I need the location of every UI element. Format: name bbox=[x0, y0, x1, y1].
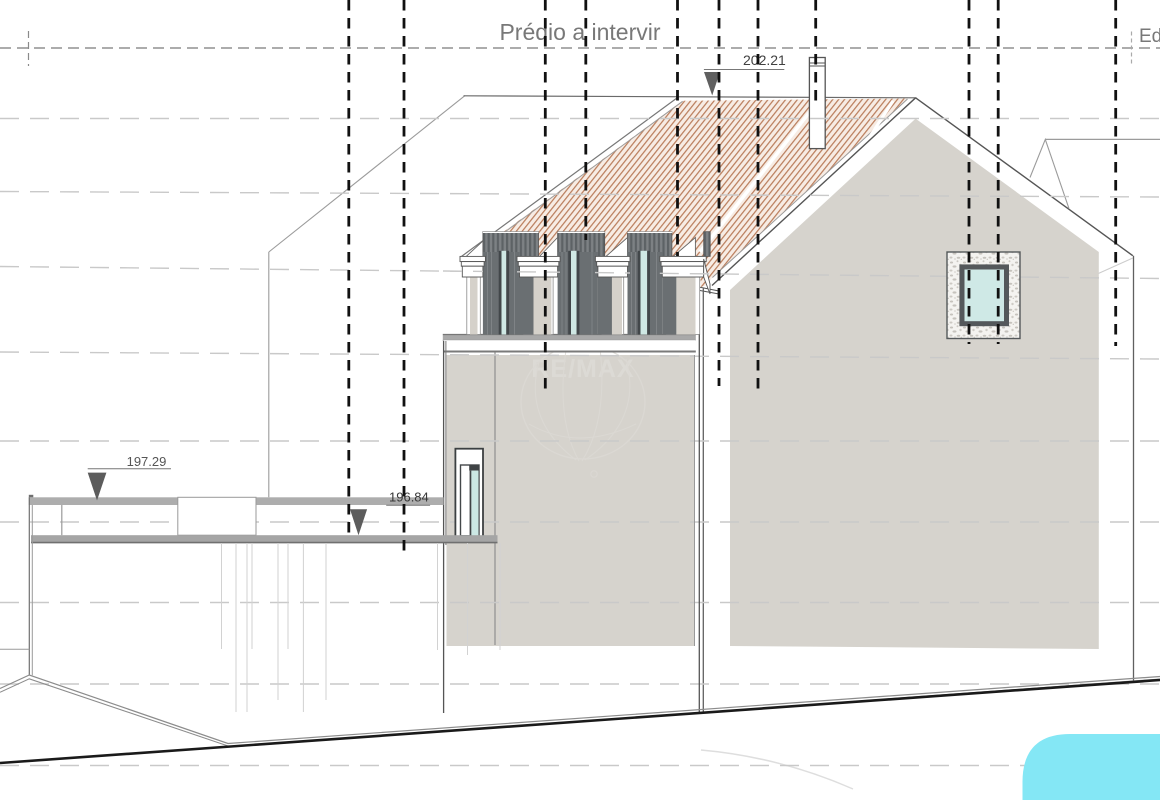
svg-text:202.21: 202.21 bbox=[743, 52, 786, 68]
svg-text:Edifício: Edifício bbox=[1139, 26, 1160, 47]
svg-text:197.29: 197.29 bbox=[127, 454, 167, 469]
svg-text:RE/MAX: RE/MAX bbox=[531, 355, 634, 383]
svg-text:196.84: 196.84 bbox=[389, 490, 429, 505]
svg-text:Prédio a intervir: Prédio a intervir bbox=[499, 19, 660, 45]
